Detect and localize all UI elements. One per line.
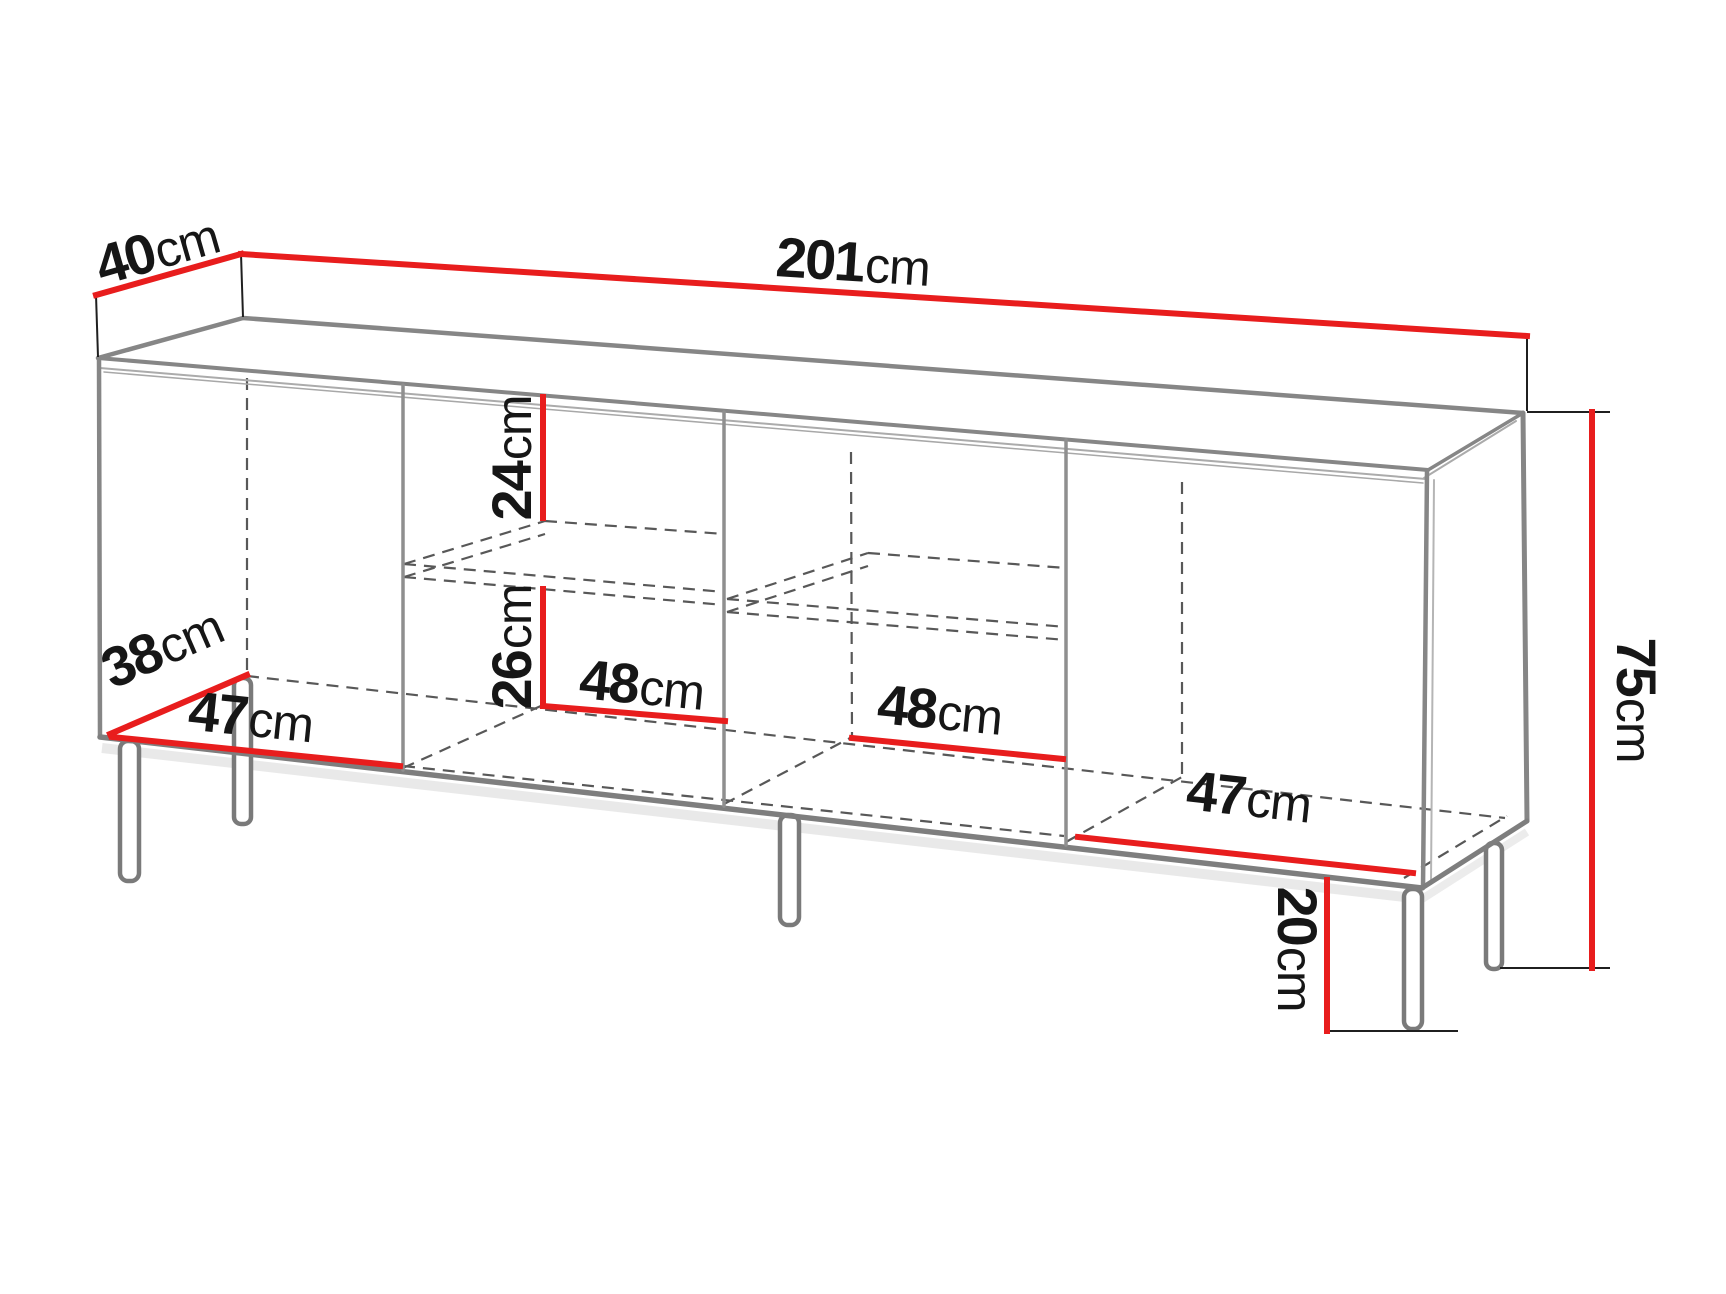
shelf2-front-top-edge: [404, 564, 724, 592]
dim-comp1-width-unit: cm: [246, 691, 316, 753]
front-left-edge: [99, 358, 100, 737]
front-right-edge-inner: [1431, 480, 1434, 884]
ext-40-201-corner: [241, 254, 243, 317]
top-left-depth-edge: [98, 318, 243, 358]
dim-below-shelf-value: 26: [480, 651, 543, 709]
top-front-edge-inner: [100, 368, 1426, 479]
shadow-right: [1422, 832, 1527, 899]
shelf3-front-top-edge: [727, 599, 1066, 627]
dim-comp3-width-value: 48: [875, 672, 939, 740]
dim-comp2-width-value: 48: [577, 647, 641, 715]
hidden-edges: [247, 378, 1507, 878]
dim-total-width-unit: cm: [863, 237, 931, 297]
comp2-bottom-depth-dashed: [403, 705, 543, 768]
dim-comp4-width-unit: cm: [1244, 771, 1314, 834]
divider2-back-dashed: [851, 452, 852, 737]
dim-above-shelf-label: 24cm: [484, 396, 540, 521]
dim-total-height-label: 75cm: [1608, 638, 1664, 763]
dim-total-width-value: 201: [774, 225, 865, 294]
dim-comp3-width-label: 48cm: [875, 676, 1005, 744]
dimension-diagram-canvas: 40cm 201cm 75cm 38cm 47cm 24cm 26cm 48cm…: [0, 0, 1726, 1294]
leg-front-left: [120, 741, 139, 881]
dim-comp1-width-value: 47: [186, 679, 251, 748]
shelf3-back-edge: [868, 553, 1066, 568]
shelf2-front-bottom-edge: [404, 577, 724, 605]
dim-comp2-width-label: 48cm: [577, 651, 707, 719]
dim-total-height-value: 75: [1605, 638, 1668, 696]
dimension-lines: [96, 254, 1592, 1031]
interior-front-bottom-dashed: [403, 766, 1064, 836]
dim-below-shelf-unit: cm: [486, 585, 542, 650]
extension-lines: [96, 254, 1610, 1031]
leg-front-right: [1404, 889, 1422, 1029]
carcass-edges: [98, 318, 1527, 888]
comp4-bottom-depth-dashed: [1066, 777, 1182, 842]
shelf2-back-edge: [545, 521, 724, 534]
back-bottom-edge-dashed: [247, 676, 1505, 818]
dim-comp2-width-unit: cm: [637, 659, 707, 721]
dim-leg-height-unit: cm: [1267, 947, 1323, 1012]
shelf3-left-top-edge: [727, 553, 868, 599]
sideboard-wireframe: [0, 0, 1726, 1294]
shelf3-front-bottom-edge: [727, 612, 1066, 640]
front-right-edge: [1423, 471, 1427, 888]
comp3-bottom-depth-dashed: [724, 737, 852, 804]
dim-leg-height-value: 20: [1266, 887, 1329, 945]
dim-total-height-unit: cm: [1606, 698, 1662, 763]
dim-above-shelf-unit: cm: [486, 396, 542, 461]
ext-40-left: [96, 295, 98, 357]
dim-comp3-width-unit: cm: [935, 684, 1005, 746]
leg-back-right: [1486, 843, 1502, 969]
dim-total-width-label: 201cm: [774, 229, 931, 295]
top-right-depth-edge: [1428, 413, 1523, 470]
top-right-depth-inner: [1424, 421, 1516, 478]
dim-above-shelf-value: 24: [480, 462, 543, 520]
right-back-edge: [1523, 413, 1527, 821]
right-bottom-depth-edge: [1422, 821, 1527, 888]
dim-leg-height-label: 20cm: [1269, 887, 1325, 1012]
dim-comp1-width-label: 47cm: [186, 683, 316, 752]
dim-comp4-width-value: 47: [1183, 758, 1248, 827]
dim-below-shelf-label: 26cm: [484, 585, 540, 710]
leg-front-middle: [780, 815, 799, 925]
top-front-edge: [98, 358, 1428, 470]
top-back-edge: [243, 318, 1523, 413]
shelf2-left-top-edge: [404, 521, 545, 564]
